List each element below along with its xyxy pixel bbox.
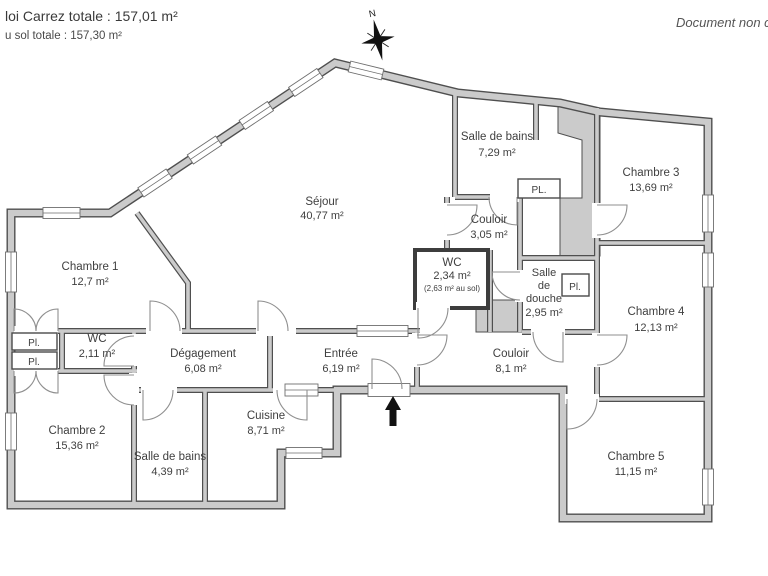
label-couloir-bas-area: 8,1 m² [495, 363, 527, 375]
label-sdb-haut-area: 7,29 m² [478, 147, 516, 159]
window-chambre1-left [6, 252, 17, 292]
label-entree: Entrée [324, 348, 358, 360]
header-floor-total: u sol totale : 157,30 m² [5, 30, 122, 42]
label-chambre5: Chambre 5 [608, 451, 665, 463]
label-entree-area: 6,19 m² [322, 363, 360, 375]
floor-plan-canvas: Séjour 40,77 m² Chambre 1 12,7 m² Chambr… [0, 0, 768, 576]
label-chambre4: Chambre 4 [628, 306, 685, 318]
label-couloir-bas: Couloir [493, 348, 530, 360]
label-degagement-area: 6,08 m² [184, 363, 222, 375]
label-chambre1-area: 12,7 m² [71, 276, 109, 288]
label-douche-area: 2,95 m² [525, 307, 563, 319]
label-pl-gauche-bas: Pl. [28, 357, 40, 368]
label-chambre3-area: 13,69 m² [629, 182, 673, 194]
header-carrez-total: loi Carrez totale : 157,01 m² [5, 8, 178, 24]
window-chambre5-right [703, 469, 714, 505]
label-sejour: Séjour [305, 196, 338, 208]
window-cuisine-bottom [286, 448, 322, 459]
label-pl-gauche-haut: Pl. [28, 338, 40, 349]
label-pl-douche: Pl. [569, 282, 581, 293]
label-couloir-haut-area: 3,05 m² [470, 229, 508, 241]
label-chambre3: Chambre 3 [623, 167, 680, 179]
label-wc-gauche-area: 2,11 m² [79, 348, 116, 360]
label-douche-l3: douche [526, 293, 562, 305]
background [0, 0, 768, 576]
window-sejour-bottom [357, 326, 408, 337]
window-chambre1-top [43, 208, 80, 219]
label-wc-milieu: WC [442, 257, 461, 269]
label-degagement: Dégagement [170, 348, 237, 360]
label-douche-l1: Salle [532, 267, 556, 279]
label-cuisine: Cuisine [247, 410, 285, 422]
label-chambre2-area: 15,36 m² [55, 440, 99, 452]
label-douche-l2: de [538, 280, 550, 292]
label-chambre4-area: 12,13 m² [634, 322, 678, 334]
label-chambre5-area: 11,15 m² [615, 466, 658, 478]
label-sdb-bas: Salle de bains [134, 451, 206, 463]
label-chambre2: Chambre 2 [49, 425, 106, 437]
header-note: Document non co [676, 15, 768, 30]
window-chambre4-right [703, 253, 714, 287]
label-pl-sdb: PL. [531, 185, 546, 196]
label-sdb-haut: Salle de bains [461, 131, 533, 143]
window-chambre3-right [703, 195, 714, 232]
window-entree-bottom [285, 384, 318, 396]
label-wc-milieu-area-sol: (2,63 m² au sol) [424, 284, 480, 293]
label-wc-milieu-area: 2,34 m² [433, 270, 471, 282]
label-couloir-haut: Couloir [471, 214, 508, 226]
window-chambre2-left [6, 413, 17, 450]
label-chambre1: Chambre 1 [62, 261, 119, 273]
label-sdb-bas-area: 4,39 m² [151, 466, 189, 478]
label-cuisine-area: 8,71 m² [247, 425, 285, 437]
label-wc-gauche: WC [87, 333, 106, 345]
entrance-threshold [368, 384, 410, 397]
label-sejour-area: 40,77 m² [300, 210, 344, 222]
